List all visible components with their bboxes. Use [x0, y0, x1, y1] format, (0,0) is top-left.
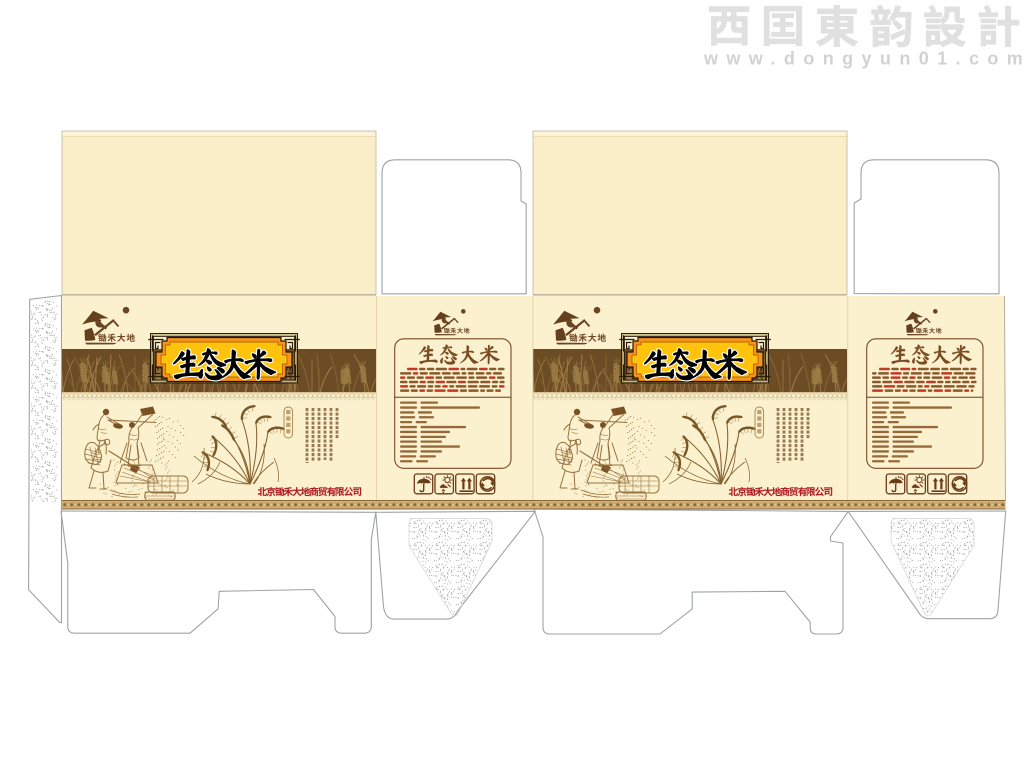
svg-text:www.dongyun01.com: www.dongyun01.com	[703, 49, 1024, 69]
